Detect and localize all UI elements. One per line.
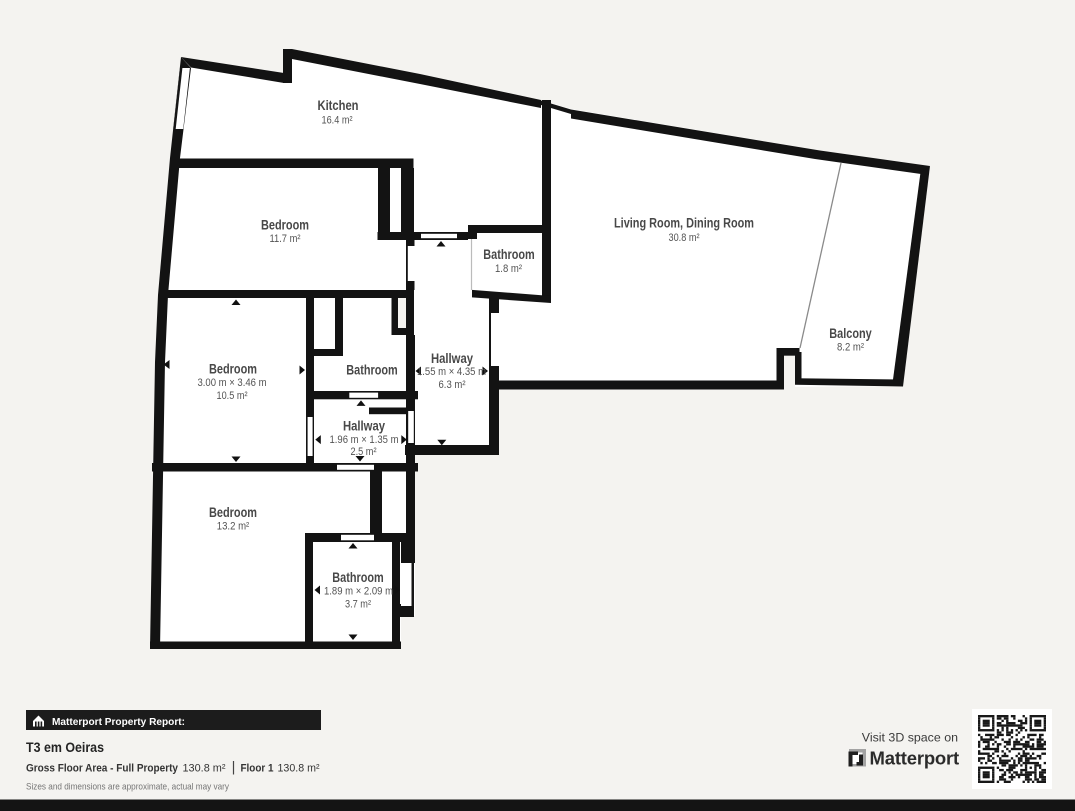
- svg-text:Bathroom: Bathroom: [332, 570, 384, 585]
- svg-text:Matterport Property Report:: Matterport Property Report:: [52, 716, 185, 728]
- svg-text:Bathroom: Bathroom: [346, 363, 398, 378]
- svg-text:Bedroom: Bedroom: [261, 218, 309, 233]
- svg-text:30.8 m²: 30.8 m²: [669, 232, 700, 244]
- svg-text:1.55 m × 4.35 m: 1.55 m × 4.35 m: [417, 366, 486, 378]
- svg-text:1.89 m × 2.09 m: 1.89 m × 2.09 m: [324, 585, 393, 597]
- svg-text:Kitchen: Kitchen: [318, 98, 359, 113]
- svg-text:10.5 m²: 10.5 m²: [217, 390, 248, 402]
- svg-text:Balcony: Balcony: [829, 326, 872, 341]
- svg-text:Floor 1: Floor 1: [241, 763, 275, 775]
- svg-text:2.5 m²: 2.5 m²: [351, 446, 377, 458]
- svg-text:3.7 m²: 3.7 m²: [345, 599, 371, 611]
- svg-text:Sizes and dimensions are appro: Sizes and dimensions are approximate, ac…: [26, 782, 229, 792]
- svg-text:T3 em Oeiras: T3 em Oeiras: [26, 740, 104, 756]
- svg-text:Visit 3D space on: Visit 3D space on: [862, 731, 958, 745]
- svg-text:6.3 m²: 6.3 m²: [439, 379, 466, 391]
- svg-text:Living Room, Dining Room: Living Room, Dining Room: [614, 216, 754, 231]
- svg-text:Bedroom: Bedroom: [209, 362, 257, 377]
- svg-text:11.7 m²: 11.7 m²: [270, 233, 301, 245]
- svg-text:Matterport: Matterport: [870, 748, 960, 769]
- svg-text:Bedroom: Bedroom: [209, 505, 257, 520]
- svg-text:1.8 m²: 1.8 m²: [495, 263, 522, 275]
- svg-text:3.00 m × 3.46 m: 3.00 m × 3.46 m: [198, 377, 267, 389]
- svg-text:Hallway: Hallway: [431, 351, 473, 366]
- svg-text:Gross Floor Area - Full Proper: Gross Floor Area - Full Property: [26, 763, 179, 775]
- svg-text:Hallway: Hallway: [343, 419, 385, 434]
- svg-text:1.96 m × 1.35 m: 1.96 m × 1.35 m: [330, 434, 399, 446]
- svg-text:Bathroom: Bathroom: [483, 247, 535, 262]
- svg-text:8.2 m²: 8.2 m²: [837, 342, 864, 354]
- svg-text:130.8 m²: 130.8 m²: [278, 763, 320, 775]
- svg-text:13.2 m²: 13.2 m²: [217, 521, 250, 533]
- svg-text:16.4 m²: 16.4 m²: [322, 115, 353, 127]
- svg-text:130.8 m²: 130.8 m²: [183, 763, 226, 775]
